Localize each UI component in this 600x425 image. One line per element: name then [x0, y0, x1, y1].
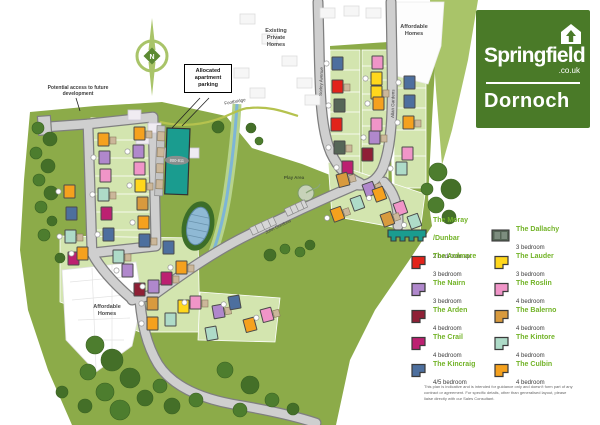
- house-the-roslin: [372, 56, 383, 69]
- house-the-kincraig: [324, 57, 343, 70]
- tree: [164, 398, 180, 414]
- label-existing-private-homes: Existing Private Homes: [258, 28, 294, 49]
- house-the-roslin: [402, 147, 413, 160]
- house-type-icon: [488, 229, 510, 242]
- tree: [78, 399, 92, 413]
- apartment-block: 800-811: [155, 126, 190, 197]
- existing-house-outline: [344, 6, 359, 16]
- tree: [35, 201, 47, 213]
- label-allocated-apartment-parking: Allocated apartment parking: [184, 64, 232, 93]
- tree: [295, 247, 305, 257]
- tree: [30, 147, 42, 159]
- existing-house-outline: [297, 78, 312, 88]
- tree: [55, 253, 65, 263]
- house-the-crail: [101, 207, 112, 220]
- house-type-icon: [488, 336, 510, 351]
- house-the-roslin: [100, 169, 111, 182]
- tree: [120, 368, 140, 388]
- house-type-name: The Arden: [433, 307, 467, 314]
- street-label-allan: Allan Gardens: [390, 89, 396, 118]
- house-the-arden: [362, 148, 373, 161]
- house-type-icon: [381, 309, 427, 324]
- label-affordable-homes-top: Affordable Homes: [396, 24, 432, 38]
- tree: [246, 123, 256, 133]
- legend-column-right: The Dallachy 3 bedroom The Lauder 3 bedr…: [488, 222, 598, 384]
- house-the-kintore: [205, 326, 218, 341]
- house-the-ardmore: [331, 118, 342, 131]
- tree: [241, 376, 259, 394]
- house-the-roslin: [371, 118, 382, 131]
- house-type-icon: [488, 255, 510, 270]
- house-type-name: The Culbin: [516, 361, 552, 368]
- tree: [217, 362, 233, 378]
- tree: [38, 229, 50, 241]
- tree: [255, 137, 263, 145]
- house-type-name: The Moray /Dunbar: [433, 217, 468, 242]
- house-the-kincraig: [163, 241, 174, 254]
- tree: [212, 121, 224, 133]
- tree: [43, 132, 57, 146]
- tree: [429, 163, 447, 181]
- street-label-sorley: Sorley Avenue: [318, 66, 324, 96]
- tree: [421, 183, 433, 195]
- compass-letter: N: [149, 54, 154, 61]
- house-type-icon: [381, 282, 427, 297]
- tree: [41, 159, 55, 173]
- house-type-name: The Ardmore: [433, 253, 476, 260]
- house-type-icon: [381, 227, 427, 244]
- house-type-name: The Roslin: [516, 280, 552, 287]
- existing-house-outline: [366, 8, 381, 18]
- legend-column-left: The Moray /Dunbar 2 bedroom apt The Ardm…: [381, 222, 485, 384]
- springfield-house-icon: [558, 22, 584, 51]
- existing-house-outline: [234, 68, 249, 78]
- site-plan: 800-811 N Sorley Avenue Allan Gardens Jo…: [0, 0, 600, 425]
- house-type-name: The Kincraig: [433, 361, 475, 368]
- tree: [33, 174, 45, 186]
- tree: [287, 403, 299, 415]
- tree: [101, 349, 123, 371]
- existing-house-outline: [250, 88, 265, 98]
- house-type-icon: [381, 336, 427, 351]
- future-development-house: [128, 110, 141, 120]
- compass-north-icon: N: [137, 18, 167, 96]
- tree: [233, 403, 247, 417]
- tree: [86, 336, 104, 354]
- house-type-name: The Crail: [433, 334, 463, 341]
- house-the-dallachy: [326, 99, 345, 112]
- tree: [264, 249, 276, 261]
- house-type-name: The Dallachy: [516, 226, 559, 233]
- tree: [47, 216, 57, 226]
- existing-house-outline: [282, 56, 297, 66]
- house-type-icon: [381, 363, 427, 378]
- tree: [80, 364, 96, 380]
- label-affordable-homes-bottom: Affordable Homes: [86, 304, 128, 318]
- existing-house-outline: [320, 8, 335, 18]
- legend-item-the-kincraig: The Kincraig 4/5 bedroom: [381, 357, 485, 384]
- house-type-icon: [381, 255, 427, 270]
- tree: [32, 122, 44, 134]
- tree: [137, 390, 153, 406]
- existing-house-outline: [240, 14, 255, 24]
- house-type-name: The Lauder: [516, 253, 554, 260]
- tree: [265, 393, 279, 407]
- disclaimer-text: This plan is indicative and is intended …: [424, 384, 576, 402]
- tree: [96, 383, 114, 401]
- tree: [56, 386, 68, 398]
- logo-divider: [486, 82, 580, 84]
- tree: [280, 244, 290, 254]
- house-the-kintore: [165, 313, 176, 326]
- tree: [305, 240, 315, 250]
- development-name: Dornoch: [484, 90, 582, 113]
- tree: [153, 379, 167, 393]
- house-the-roslin: [134, 162, 145, 175]
- apartment-plots-text: 800-811: [170, 158, 185, 164]
- label-play-area: Play Area: [283, 175, 305, 181]
- house-type-icon: [488, 282, 510, 297]
- house-type-icon: [488, 363, 510, 378]
- house-type-name: The Kintore: [516, 334, 555, 341]
- house-the-balerno: [137, 197, 148, 210]
- tree: [110, 400, 130, 420]
- springfield-logo: Springfield .co.uk Dornoch: [476, 10, 590, 128]
- tree: [189, 393, 203, 407]
- legend-item-the-culbin: The Culbin 4 bedroom: [488, 357, 598, 384]
- house-type-icon: [488, 309, 510, 324]
- tree: [44, 186, 58, 200]
- house-the-kincraig: [66, 207, 77, 220]
- tree: [441, 179, 461, 199]
- house-type-name: The Balerno: [516, 307, 556, 314]
- house-the-kincraig: [404, 95, 415, 108]
- label-potential-access: Potential access to future development: [46, 85, 110, 98]
- house-type-name: The Nairn: [433, 280, 465, 287]
